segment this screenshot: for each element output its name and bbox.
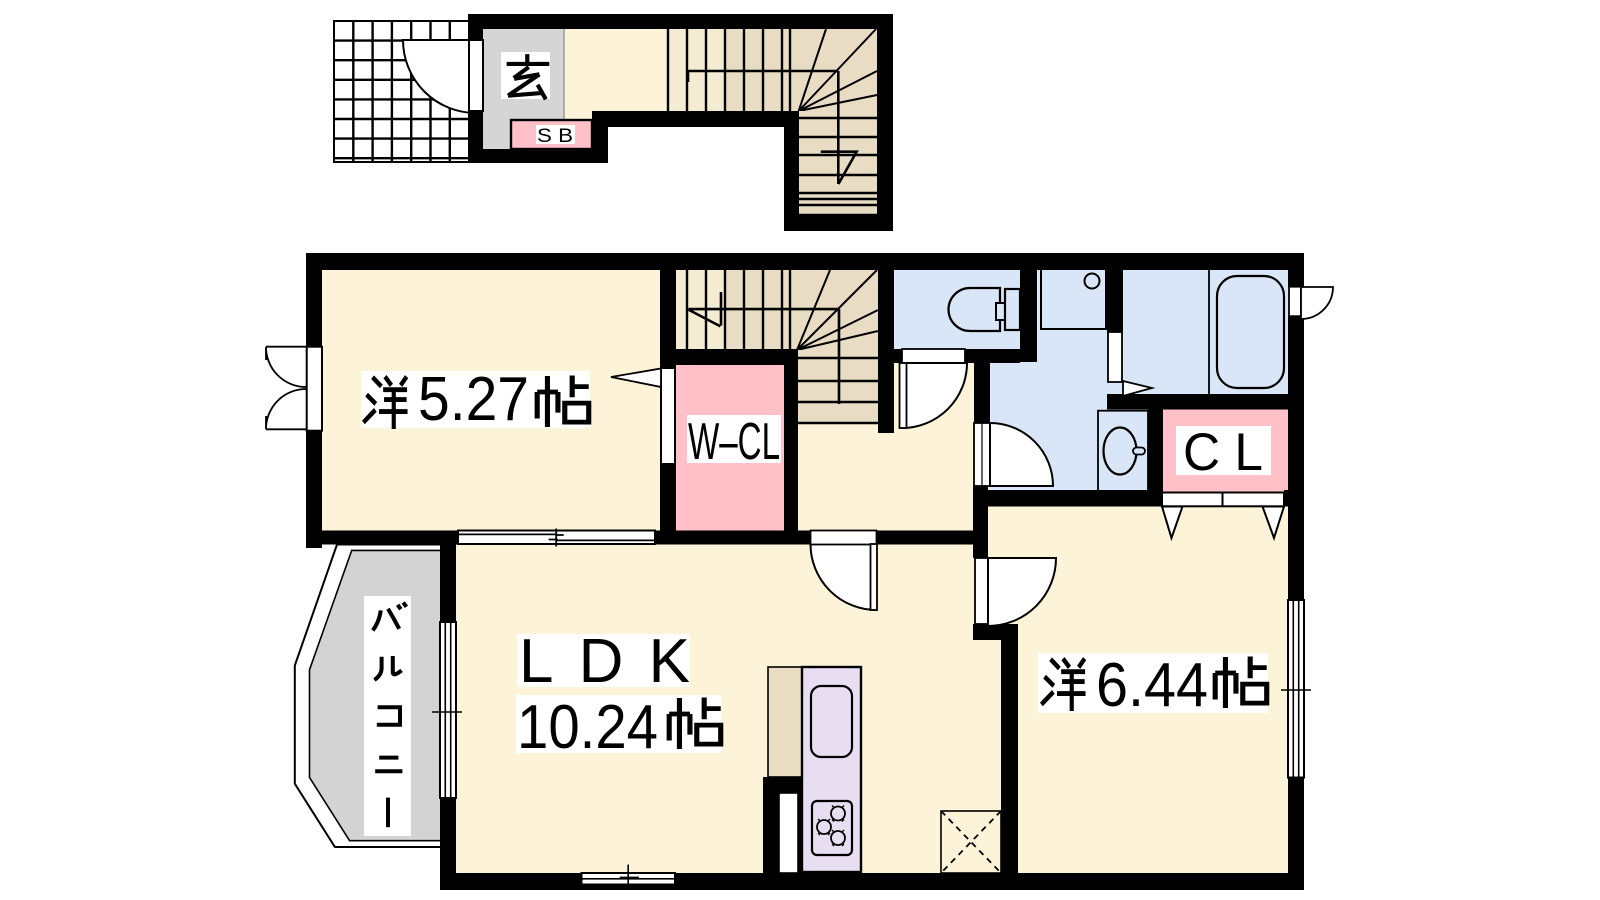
svg-text:W–CL: W–CL — [688, 413, 780, 471]
svg-text:6.44: 6.44 — [1096, 651, 1208, 720]
svg-text:10.24: 10.24 — [517, 693, 658, 762]
svg-text:S B: S B — [537, 126, 573, 147]
svg-text:5.27: 5.27 — [418, 365, 529, 434]
svg-text:LDK: LDK — [519, 627, 690, 696]
svg-text:C L: C L — [1183, 423, 1263, 482]
